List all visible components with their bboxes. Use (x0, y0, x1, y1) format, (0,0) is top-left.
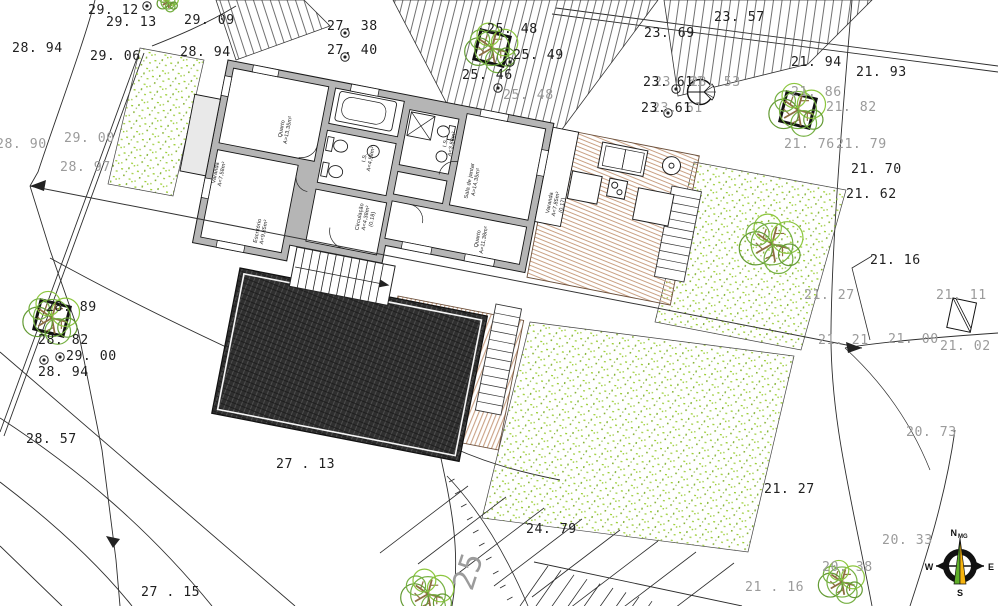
edge-tick (467, 517, 473, 520)
spot-elevation-label: 27. 40 (327, 43, 378, 58)
compass-rose: N MG W E S (925, 528, 994, 598)
edge-tick (500, 585, 506, 588)
spot-elevation-label: 21. 93 (856, 65, 907, 80)
spot-elevation-label: 28. 57 (26, 432, 77, 447)
spot-elevation-label: 25. 48 (487, 22, 538, 37)
table-item (617, 189, 623, 195)
garden-bottom (482, 322, 794, 552)
spot-level-marker (143, 2, 151, 10)
edge-tick (461, 504, 467, 507)
edge-tick (493, 571, 499, 574)
neighbour-step-line (520, 566, 548, 606)
spot-elevation-label: 20. 38 (822, 560, 873, 575)
spot-level-marker (40, 356, 48, 364)
spot-elevation-label: 21. 86 (791, 85, 842, 100)
spot-elevation-label: 21. 27 (764, 482, 815, 497)
compass-s-label: S (957, 588, 963, 598)
neighbour-step-line (533, 570, 561, 606)
contour-line (534, 562, 742, 606)
spot-elevation-label: 21. 21 (818, 333, 869, 348)
contour-line (30, 0, 95, 186)
spot-elevation-label: 21 . 16 (745, 580, 804, 595)
coffee-table (607, 178, 628, 199)
step-line (570, 541, 658, 606)
spot-elevation-label: 28. 94 (180, 45, 231, 60)
edge-tick (479, 543, 485, 546)
contour-line (0, 546, 62, 606)
boundary-arrow (106, 536, 120, 548)
spot-elevation-label: 28. 90 (0, 137, 47, 152)
armchair (567, 171, 602, 204)
spot-elevation-label: 21. 94 (791, 55, 842, 70)
spot-elevation-label: 27. 38 (327, 19, 378, 34)
neighbour-step-line (559, 579, 587, 606)
spot-elevation-label: 21. 11 (936, 288, 987, 303)
spot-elevation-label: 21. 16 (870, 253, 921, 268)
spot-elevation-label: 25. 46 (462, 68, 513, 83)
spot-level-marker (56, 353, 64, 361)
neighbour-step-line (546, 575, 574, 606)
edge-tick (507, 597, 513, 600)
spot-elevation-label: 28. 89 (46, 300, 97, 315)
spot-elevation-label: 23. 57 (714, 10, 765, 25)
contour-label: 25 (446, 548, 491, 594)
spot-elevation-label: 29. 06 (90, 49, 141, 64)
spot-elevation-label: 21. 82 (826, 100, 877, 115)
spot-elevation-label: 23. 69 (644, 26, 695, 41)
spot-elevation-label: 28. 97 (60, 160, 111, 175)
compass-e-point (976, 562, 984, 570)
spot-elevation-label: 23. 61 (643, 75, 694, 90)
compass-e-label: E (988, 562, 994, 572)
spot-elevation-label: 23. 61 (641, 101, 692, 116)
spot-elevation-label: 25. 49 (513, 48, 564, 63)
property-boundary (30, 186, 120, 606)
table-item (611, 182, 618, 189)
neighbour-step-line (585, 588, 613, 606)
tree (401, 569, 454, 606)
spot-elevation-label: 27 . 15 (141, 585, 200, 600)
spot-elevation-label: 28. 82 (38, 333, 89, 348)
contour-line (845, 348, 930, 470)
tree (157, 0, 178, 12)
spot-elevation-label: 21. 27 (804, 288, 855, 303)
compass-n-label: N (951, 528, 958, 538)
spot-elevation-label: 21. 02 (940, 339, 991, 354)
spot-elevation-label: 29. 00 (66, 349, 117, 364)
spot-elevation-label: 21. 79 (836, 137, 887, 152)
spot-elevation-label: 23. 53 (690, 75, 741, 90)
step-line (646, 563, 734, 606)
spot-elevation-label: 29. 09 (184, 13, 235, 28)
step-line (532, 530, 620, 597)
spot-elevation-label: 25. 48 (503, 88, 554, 103)
armchair (633, 188, 674, 226)
spot-elevation-label: 28. 94 (38, 365, 89, 380)
spot-elevation-label: 20. 33 (882, 533, 933, 548)
compass-w-label: W (925, 562, 934, 572)
spot-elevation-label: 24. 79 (526, 522, 577, 537)
spot-elevation-label: 21. 00 (888, 332, 939, 347)
spot-elevation-label: 20. 73 (906, 425, 957, 440)
site-plan-canvas: N MG W E S 29. 1229. 1329. 0928. 9429. 0… (0, 0, 998, 606)
gate-structure (947, 298, 977, 332)
compass-w-point (936, 562, 944, 570)
round-table-center (669, 163, 675, 169)
tree-canopy (818, 573, 842, 597)
spot-elevation-label: 21. 70 (851, 162, 902, 177)
spot-elevation-label: 29. 13 (106, 15, 157, 30)
contour-line (852, 256, 872, 340)
north-needle-yellow (960, 538, 966, 584)
step-line (608, 552, 696, 606)
site-plan-drawing: N MG W E S 29. 1229. 1329. 0928. 9429. 0… (0, 0, 998, 606)
north-needle-green (954, 538, 960, 584)
edge-tick (473, 530, 479, 533)
room-sala-jantar (449, 114, 545, 221)
spot-elevation-label: 28. 94 (12, 41, 63, 56)
compass-n-sub-label: MG (958, 534, 968, 540)
spot-elevation-label: 21. 76 (784, 137, 835, 152)
spot-elevation-label: 27 . 13 (276, 457, 335, 472)
spot-elevation-label: 29. 00 (64, 131, 115, 146)
contour-line (910, 430, 955, 606)
spot-elevation-label: 21. 62 (846, 187, 897, 202)
roof-hatch-top-left (216, 0, 330, 60)
